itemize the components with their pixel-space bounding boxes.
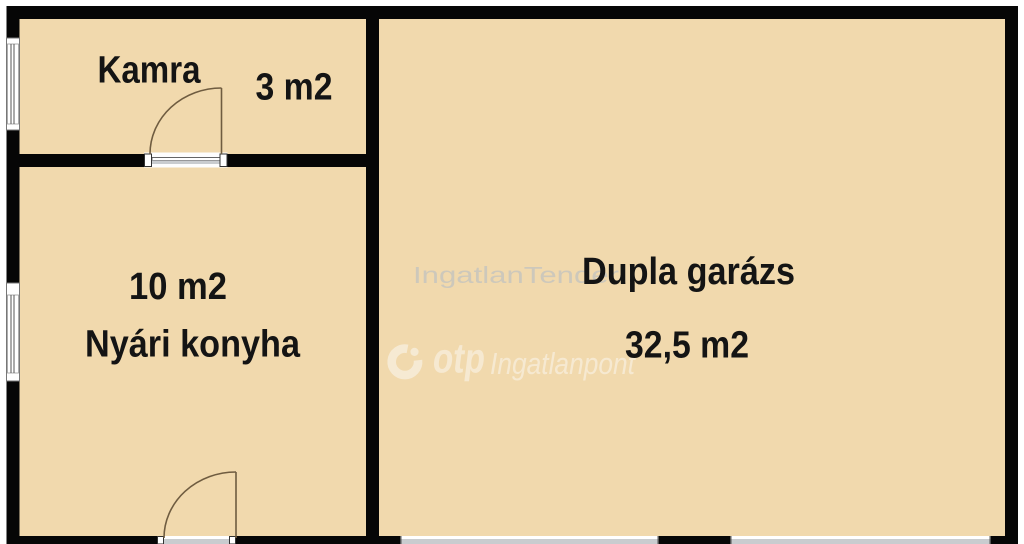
svg-text:10 m2: 10 m2	[129, 266, 227, 308]
svg-text:3 m2: 3 m2	[256, 67, 333, 109]
svg-text:otp: otp	[430, 335, 488, 382]
svg-text:Ingatlanpont: Ingatlanpont	[490, 346, 636, 381]
svg-text:Kamra: Kamra	[98, 50, 202, 92]
svg-text:Dupla garázs: Dupla garázs	[582, 251, 795, 293]
svg-text:32,5 m2: 32,5 m2	[625, 325, 749, 367]
svg-text:Nyári konyha: Nyári konyha	[85, 324, 301, 366]
